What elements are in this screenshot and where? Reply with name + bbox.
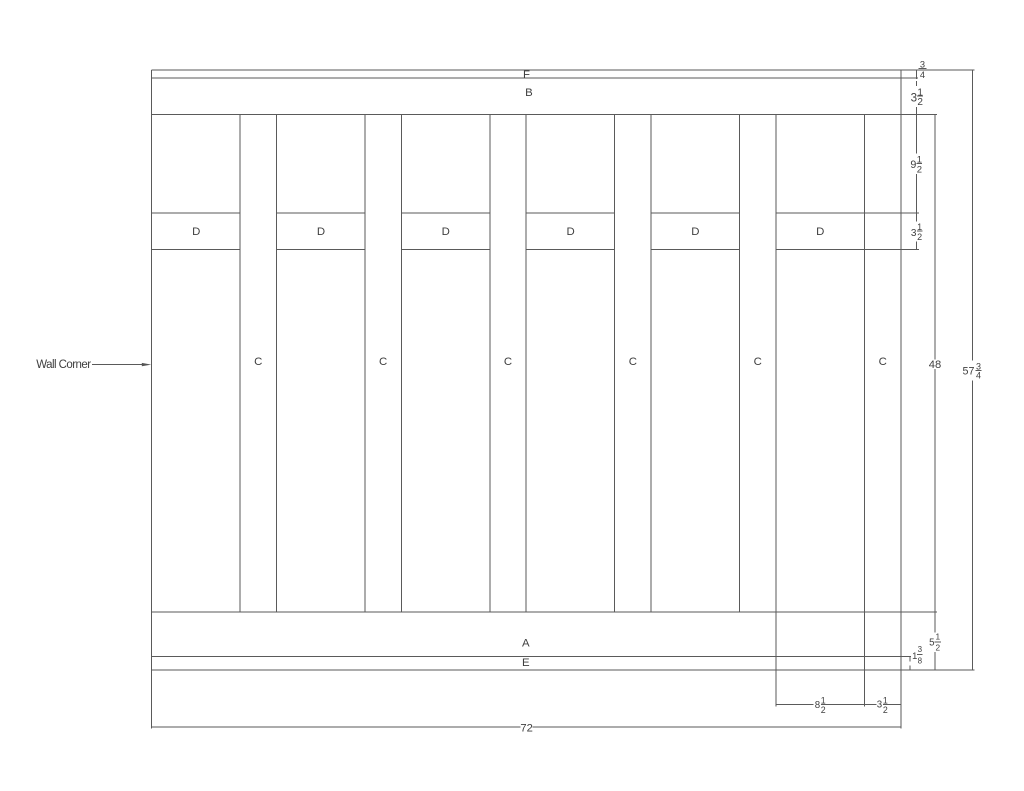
svg-text:72: 72	[520, 723, 532, 735]
svg-text:C: C	[504, 356, 512, 368]
svg-text:A: A	[522, 638, 530, 650]
svg-text:E: E	[522, 657, 530, 669]
svg-text:Wall Corner: Wall Corner	[36, 359, 91, 371]
svg-text:3: 3	[920, 59, 925, 69]
svg-text:48: 48	[929, 359, 941, 371]
svg-text:3: 3	[877, 700, 882, 711]
svg-text:D: D	[691, 226, 699, 238]
svg-text:57: 57	[963, 365, 975, 377]
svg-text:8: 8	[918, 657, 923, 666]
svg-text:C: C	[254, 356, 262, 368]
svg-text:C: C	[629, 356, 637, 368]
svg-text:C: C	[754, 356, 762, 368]
svg-text:F: F	[523, 69, 530, 81]
svg-text:9: 9	[910, 159, 916, 171]
svg-text:3: 3	[911, 92, 917, 105]
svg-text:1: 1	[912, 650, 917, 661]
svg-text:2: 2	[935, 643, 940, 653]
svg-text:4: 4	[976, 371, 981, 381]
svg-text:C: C	[379, 356, 387, 368]
svg-text:3: 3	[911, 228, 917, 239]
svg-text:1: 1	[935, 632, 940, 642]
svg-text:2: 2	[917, 165, 922, 176]
svg-text:D: D	[442, 226, 450, 238]
svg-text:D: D	[192, 226, 200, 238]
svg-text:5: 5	[929, 638, 934, 649]
svg-text:D: D	[566, 226, 574, 238]
svg-text:D: D	[317, 226, 325, 238]
svg-text:D: D	[816, 226, 824, 238]
svg-text:4: 4	[920, 70, 925, 80]
svg-text:C: C	[879, 356, 887, 368]
svg-text:2: 2	[883, 705, 888, 715]
svg-text:2: 2	[917, 232, 922, 242]
svg-text:B: B	[525, 87, 533, 99]
svg-text:2: 2	[917, 97, 923, 108]
svg-text:2: 2	[821, 705, 826, 715]
svg-text:8: 8	[815, 700, 820, 711]
svg-text:3: 3	[918, 645, 923, 654]
